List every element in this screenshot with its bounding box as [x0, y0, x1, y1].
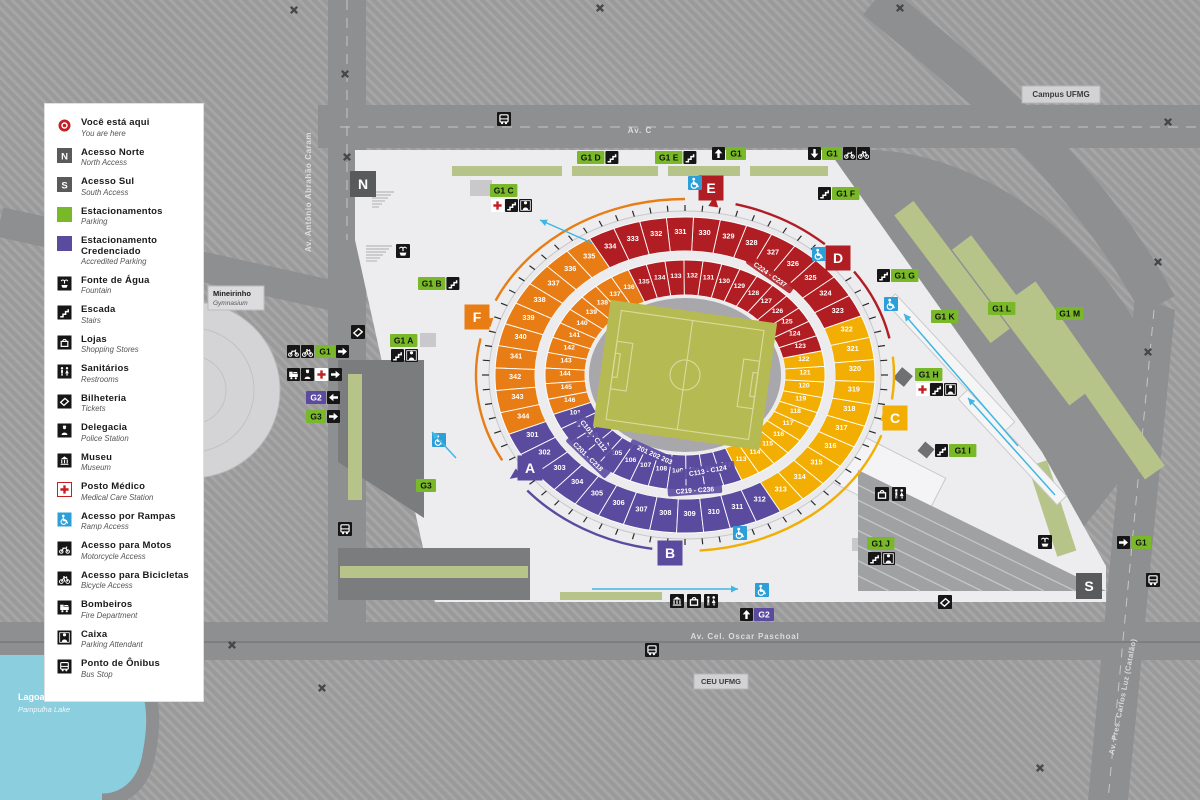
section-label-117: 117 [783, 420, 794, 427]
stairs-icon [57, 305, 72, 320]
legend-item: Acesso por Rampas Ramp Access [57, 512, 193, 532]
mineirinho-label: Mineirinho [213, 289, 251, 298]
bus-icon [497, 112, 511, 126]
gate-s: S [1076, 573, 1102, 599]
legend-item: Museu Museum [57, 453, 193, 473]
legend-item: Bilheteria Tickets [57, 394, 193, 414]
svg-text:N: N [61, 151, 68, 162]
fountain-icon [396, 244, 410, 258]
section-label-116: 116 [773, 431, 784, 438]
wheelchair-icon [812, 247, 826, 261]
legend-label: Acesso para Motos [81, 541, 172, 552]
letter-s-icon: S [57, 177, 72, 192]
svg-text:G1: G1 [826, 149, 838, 159]
legend-sublabel: Medical Care Station [81, 493, 153, 502]
stairs-icon [868, 552, 881, 565]
legend-label: Museu [81, 453, 112, 464]
legend-label: Acesso por Rampas [81, 512, 176, 523]
arrow-up-icon [740, 608, 753, 621]
wheelchair-icon [57, 512, 72, 527]
caixa-icon [57, 630, 72, 645]
wheelchair-icon [733, 526, 747, 540]
svg-text:G3: G3 [420, 481, 432, 491]
sign-g1-g: G1 G [877, 269, 918, 282]
section-label-125: 125 [781, 319, 793, 326]
svg-text:G1 L: G1 L [992, 304, 1011, 314]
section-label-333: 333 [627, 234, 639, 243]
section-label-130: 130 [719, 278, 731, 285]
police-icon [57, 423, 72, 438]
gate-n: N [350, 171, 376, 197]
caixa-icon [519, 199, 532, 212]
section-label-320: 320 [849, 364, 861, 373]
legend-label: Acesso para Bicicletas [81, 571, 189, 582]
section-label-328: 328 [745, 238, 757, 247]
legend-sublabel: Museum [81, 463, 112, 472]
stairs-icon [818, 187, 831, 200]
legend-item: Posto Médico Medical Care Station [57, 482, 193, 502]
shops-icon [687, 594, 701, 608]
svg-text:G1 C: G1 C [494, 186, 514, 196]
stairs-icon [683, 151, 696, 164]
section-label-313: 313 [775, 485, 787, 494]
section-label-304: 304 [571, 477, 584, 486]
section-label-122: 122 [798, 356, 810, 363]
section-label-144: 144 [559, 371, 571, 378]
section-label-136: 136 [623, 284, 635, 291]
arrow-right-icon [327, 410, 340, 423]
legend-item: Estacionamento Credenciado Accredited Pa… [57, 236, 193, 266]
medical-icon [491, 199, 504, 212]
svg-text:G1 D: G1 D [581, 153, 601, 163]
svg-text:G1 K: G1 K [935, 312, 956, 322]
legend-item: Escada Stairs [57, 305, 193, 325]
legend-sublabel: Bicycle Access [81, 581, 189, 590]
section-label-334: 334 [604, 241, 617, 250]
section-label-312: 312 [754, 495, 766, 504]
arrow-up-icon [712, 147, 725, 160]
section-label-316: 316 [824, 441, 836, 450]
stairs-icon [877, 269, 890, 282]
section-label-146: 146 [564, 397, 576, 404]
gate-a: A [518, 456, 543, 481]
sign-g1: G1 [712, 147, 746, 160]
svg-text:G1 E: G1 E [659, 153, 679, 163]
museum-icon [670, 594, 684, 608]
sign-g2: G2 [740, 608, 774, 621]
legend-sublabel: South Access [81, 188, 134, 197]
section-label-129: 129 [734, 283, 746, 290]
fire-icon [287, 368, 300, 381]
legend-label: Acesso Sul [81, 177, 134, 188]
section-label-139: 139 [586, 309, 598, 316]
section-label-140: 140 [576, 320, 588, 327]
sign-g1: G1 [808, 147, 870, 160]
legend-sublabel: Ramp Access [81, 522, 176, 531]
legend-panel: Você está aqui You are hereN Acesso Nort… [45, 104, 203, 701]
sign-g1-i: G1 I [935, 444, 976, 457]
sign-g1-f: G1 F [818, 187, 859, 200]
section-label-310: 310 [708, 507, 720, 516]
stairs-icon [391, 349, 404, 362]
section-label-332: 332 [650, 229, 662, 238]
ticket-icon [938, 595, 952, 609]
legend-label: Bilheteria [81, 394, 126, 405]
section-label-123: 123 [795, 343, 807, 350]
mineirinho-sublabel: Gymnasium [213, 300, 248, 307]
section-label-329: 329 [722, 232, 734, 241]
section-label-134: 134 [654, 275, 666, 282]
svg-text:G1: G1 [1135, 538, 1147, 548]
legend-label: Fonte de Água [81, 276, 150, 287]
legend-sublabel: Fire Department [81, 611, 137, 620]
legend-label: Lojas [81, 335, 139, 346]
caixa-icon [405, 349, 418, 362]
section-label-141: 141 [569, 332, 581, 339]
section-label-131: 131 [703, 274, 715, 281]
bus-icon [1146, 573, 1160, 587]
section-label-338: 338 [533, 295, 545, 304]
ceu-ufmg-label: CEU UFMG [701, 677, 741, 686]
police-icon [301, 368, 314, 381]
section-label-145: 145 [561, 384, 573, 391]
section-label-309: 309 [683, 509, 695, 518]
svg-text:B: B [665, 545, 675, 561]
legend-sublabel: Shopping Stores [81, 345, 139, 354]
svg-text:S: S [1084, 578, 1093, 594]
svg-text:G1 F: G1 F [836, 189, 855, 199]
section-label-108: 108 [656, 466, 668, 473]
caixa-icon [944, 383, 957, 396]
section-label-106: 106 [625, 457, 637, 464]
legend-label: Estacionamento Credenciado [81, 236, 193, 257]
section-label-301: 301 [526, 430, 538, 439]
legend-sublabel: North Access [81, 158, 145, 167]
section-label-318: 318 [843, 404, 855, 413]
street-caram: Av. Antônio Abrahão Caram [304, 132, 313, 252]
legend-sublabel: Bus Stop [81, 670, 160, 679]
svg-text:S: S [61, 181, 67, 192]
stairs-icon [505, 199, 518, 212]
section-label-324: 324 [819, 289, 832, 298]
svg-text:G2: G2 [310, 393, 322, 403]
legend-item: Acesso para Bicicletas Bicycle Access [57, 571, 193, 591]
svg-text:F: F [473, 309, 482, 325]
svg-text:E: E [706, 180, 715, 196]
legend-sublabel: Police Station [81, 434, 129, 443]
legend-item: Acesso para Motos Motorcycle Access [57, 541, 193, 561]
arrow-right-icon [329, 368, 342, 381]
svg-text:A: A [525, 460, 535, 476]
svg-text:G1: G1 [730, 149, 742, 159]
sign-g3: G3 [416, 479, 436, 492]
section-label-341: 341 [510, 352, 522, 361]
section-label-126: 126 [772, 308, 784, 315]
section-label-142: 142 [564, 344, 576, 351]
section-label-115: 115 [762, 441, 773, 448]
sign-g1: G1 [1117, 536, 1151, 549]
stairs-icon [930, 383, 943, 396]
section-label-336: 336 [564, 264, 576, 273]
legend-label: Bombeiros [81, 600, 137, 611]
section-label-319: 319 [848, 384, 860, 393]
section-label-308: 308 [659, 508, 671, 517]
bike-icon [301, 345, 314, 358]
section-label-325: 325 [804, 273, 816, 282]
bike-icon [57, 571, 72, 586]
section-label-317: 317 [835, 423, 847, 432]
svg-text:D: D [833, 250, 843, 266]
svg-text:G1 A: G1 A [394, 336, 414, 346]
section-label-132: 132 [687, 273, 699, 280]
parking-icon [57, 207, 72, 222]
street-paschoal: Av. Cel. Oscar Paschoal [690, 632, 799, 641]
svg-text:G1 G: G1 G [895, 271, 916, 281]
section-label-113: 113 [736, 456, 747, 463]
section-label-343: 343 [511, 392, 523, 401]
legend-label: Sanitários [81, 364, 129, 375]
wheelchair-icon [755, 583, 769, 597]
arrow-down-icon [808, 147, 821, 160]
svg-text:N: N [358, 176, 368, 192]
stairs-icon [446, 277, 459, 290]
svg-text:G3: G3 [310, 412, 322, 422]
section-label-303: 303 [553, 463, 565, 472]
football-field [593, 300, 777, 450]
section-label-128: 128 [748, 290, 760, 297]
gate-f: F [465, 305, 490, 330]
fountain-icon [57, 276, 72, 291]
legend-label: Ponto de Ônibus [81, 659, 160, 670]
legend-sublabel: Restrooms [81, 375, 129, 384]
section-label-138: 138 [597, 299, 609, 306]
section-label-143: 143 [560, 357, 572, 364]
svg-text:G1 H: G1 H [919, 370, 939, 380]
restrooms-icon [704, 594, 718, 608]
shops-icon [57, 335, 72, 350]
medical-icon [916, 383, 929, 396]
bike-icon [857, 147, 870, 160]
you-are-here-icon [57, 118, 72, 133]
restrooms-icon [57, 364, 72, 379]
legend-sublabel: Stairs [81, 316, 115, 325]
moto-icon [843, 147, 856, 160]
bus-icon [57, 659, 72, 674]
stairs-icon [935, 444, 948, 457]
arrow-right-icon [1117, 536, 1130, 549]
section-label-339: 339 [522, 313, 534, 322]
section-label-127: 127 [761, 298, 773, 305]
section-label-340: 340 [515, 332, 527, 341]
ticket-icon [351, 325, 365, 339]
legend-label: Você está aqui [81, 118, 150, 129]
arrow-right-icon [336, 345, 349, 358]
medical-icon [315, 368, 328, 381]
section-label-311: 311 [731, 502, 743, 511]
section-label-314: 314 [794, 472, 807, 481]
legend-sublabel: Motorcycle Access [81, 552, 172, 561]
svg-text:G1: G1 [319, 347, 331, 357]
section-label-135: 135 [638, 278, 650, 285]
section-label-124: 124 [789, 330, 801, 337]
section-label-321: 321 [846, 344, 858, 353]
legend-label: Delegacia [81, 423, 129, 434]
section-label-133: 133 [670, 273, 682, 280]
section-label-307: 307 [635, 504, 647, 513]
svg-text:G1 I: G1 I [955, 446, 971, 456]
stadium-map: 3013023033043053063073083093103113123133… [0, 0, 1200, 800]
legend-label: Escada [81, 305, 115, 316]
letter-n-icon: N [57, 148, 72, 163]
sign-g1-l: G1 L [988, 302, 1015, 315]
legend-item: Ponto de Ônibus Bus Stop [57, 659, 193, 679]
section-label-327: 327 [767, 247, 779, 256]
museum-icon [57, 453, 72, 468]
legend-item: Sanitários Restrooms [57, 364, 193, 384]
legend-label: Caixa [81, 630, 143, 641]
section-label-315: 315 [810, 457, 822, 466]
section-label-305: 305 [591, 489, 603, 498]
legend-item: N Acesso Norte North Access [57, 148, 193, 168]
legend-item: Você está aqui You are here [57, 118, 193, 138]
shops-icon [875, 487, 889, 501]
legend-item: Estacionamentos Parking [57, 207, 193, 227]
restrooms-icon [892, 487, 906, 501]
legend-sublabel: Parking [81, 217, 163, 226]
campus-ufmg-label: Campus UFMG [1032, 90, 1089, 99]
fountain-icon [1038, 535, 1052, 549]
accredited-parking-icon [57, 236, 72, 251]
svg-text:G1 M: G1 M [1059, 309, 1080, 319]
legend-item: Lojas Shopping Stores [57, 335, 193, 355]
legend-item: S Acesso Sul South Access [57, 177, 193, 197]
moto-icon [287, 345, 300, 358]
svg-text:G2: G2 [758, 610, 770, 620]
section-label-119: 119 [795, 396, 806, 403]
sign-g2: G2 [306, 391, 340, 404]
section-label-344: 344 [517, 411, 530, 420]
sign-g1: G1 [287, 345, 349, 358]
fire-icon [57, 600, 72, 615]
legend-sublabel: You are here [81, 129, 150, 138]
gate-b: B [658, 541, 683, 566]
legend-item: Fonte de Água Fountain [57, 276, 193, 296]
section-label-331: 331 [674, 227, 686, 236]
lagoa-sublabel: Pampulha Lake [18, 705, 70, 714]
legend-label: Acesso Norte [81, 148, 145, 159]
section-label-306: 306 [612, 498, 624, 507]
moto-icon [57, 541, 72, 556]
street-av-c: Av. C [628, 126, 653, 135]
sign-g1-b: G1 B [418, 277, 459, 290]
section-label-335: 335 [583, 251, 595, 260]
gate-e: E [699, 176, 724, 201]
legend-sublabel: Fountain [81, 286, 150, 295]
svg-text:G1 J: G1 J [871, 539, 890, 549]
sign-g3: G3 [306, 410, 340, 423]
bus-icon [338, 522, 352, 536]
legend-item: Delegacia Police Station [57, 423, 193, 443]
wheelchair-icon [884, 297, 898, 311]
section-label-118: 118 [790, 408, 801, 415]
svg-text:G1 B: G1 B [422, 279, 442, 289]
svg-text:C: C [890, 410, 900, 426]
section-label-121: 121 [799, 369, 811, 376]
section-label-322: 322 [841, 325, 853, 334]
gate-c: C [883, 406, 908, 431]
legend-sublabel: Parking Attendant [81, 640, 143, 649]
section-label-330: 330 [699, 228, 711, 237]
gate-d: D [826, 246, 851, 271]
section-label-337: 337 [547, 279, 559, 288]
section-label-323: 323 [832, 306, 844, 315]
section-label-114: 114 [749, 449, 760, 456]
legend-item: Bombeiros Fire Department [57, 600, 193, 620]
section-label-326: 326 [787, 259, 799, 268]
section-label-120: 120 [798, 383, 810, 390]
medical-icon [57, 482, 72, 497]
stairs-icon [605, 151, 618, 164]
sign-g1-k: G1 K [931, 310, 958, 323]
section-label-137: 137 [609, 291, 621, 298]
section-label-107: 107 [640, 462, 652, 469]
legend-label: Posto Médico [81, 482, 153, 493]
legend-item: Caixa Parking Attendant [57, 630, 193, 650]
wheelchair-icon [688, 176, 702, 190]
sign-g1-e: G1 E [655, 151, 696, 164]
ticket-icon [57, 394, 72, 409]
legend-sublabel: Tickets [81, 404, 126, 413]
sign-g1-d: G1 D [577, 151, 618, 164]
legend-sublabel: Accredited Parking [81, 257, 193, 266]
bus-icon [645, 643, 659, 657]
section-label-342: 342 [509, 372, 521, 381]
arrow-left-icon [327, 391, 340, 404]
caixa-icon [882, 552, 895, 565]
sign-g1-m: G1 M [1056, 307, 1083, 320]
legend-label: Estacionamentos [81, 207, 163, 218]
section-label-302: 302 [538, 447, 550, 456]
